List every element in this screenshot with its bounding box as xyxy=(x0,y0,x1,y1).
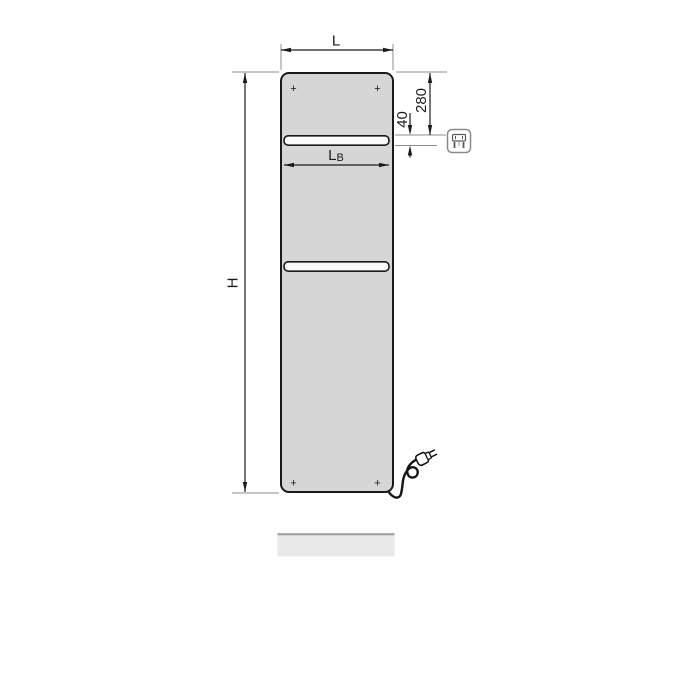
towel-slot-lower xyxy=(284,262,389,271)
power-plug-prong-top xyxy=(429,450,435,453)
arrow-up-icon xyxy=(408,146,412,156)
arrow-right-icon xyxy=(383,48,393,52)
arrow-down-icon xyxy=(428,125,432,135)
arrow-left-icon xyxy=(281,48,291,52)
arrow-up-icon xyxy=(428,73,432,83)
dimension-drawing: + + + + L H 280 40 LB xyxy=(0,0,700,700)
floor-shadow xyxy=(278,534,395,557)
dim-height-label: H xyxy=(225,278,242,289)
drawing-canvas: + + + + L H 280 40 LB xyxy=(0,0,700,700)
plus-mark-top-left: + xyxy=(290,83,296,95)
dim-width: L xyxy=(281,33,393,53)
power-plug xyxy=(415,447,439,466)
plus-mark-top-right: + xyxy=(374,83,380,95)
electric-plug-icon xyxy=(448,130,471,153)
floor-shadow-body xyxy=(278,534,395,557)
power-plug-prong-bottom xyxy=(431,454,437,457)
dim-top-offset: 280 xyxy=(413,73,432,135)
dim-width-label: L xyxy=(332,33,340,50)
electric-plug-icon-body xyxy=(453,135,466,142)
dim-slot-height-label: 40 xyxy=(394,111,411,128)
plus-mark-bottom-left: + xyxy=(290,478,296,490)
dim-slot-height: 40 xyxy=(394,111,412,157)
arrow-up-icon xyxy=(243,73,247,83)
towel-slot-upper xyxy=(284,136,389,145)
dim-top-offset-label: 280 xyxy=(413,88,430,113)
dim-height: H xyxy=(225,73,248,492)
plus-mark-bottom-right: + xyxy=(374,478,380,490)
arrow-down-icon xyxy=(243,482,247,492)
